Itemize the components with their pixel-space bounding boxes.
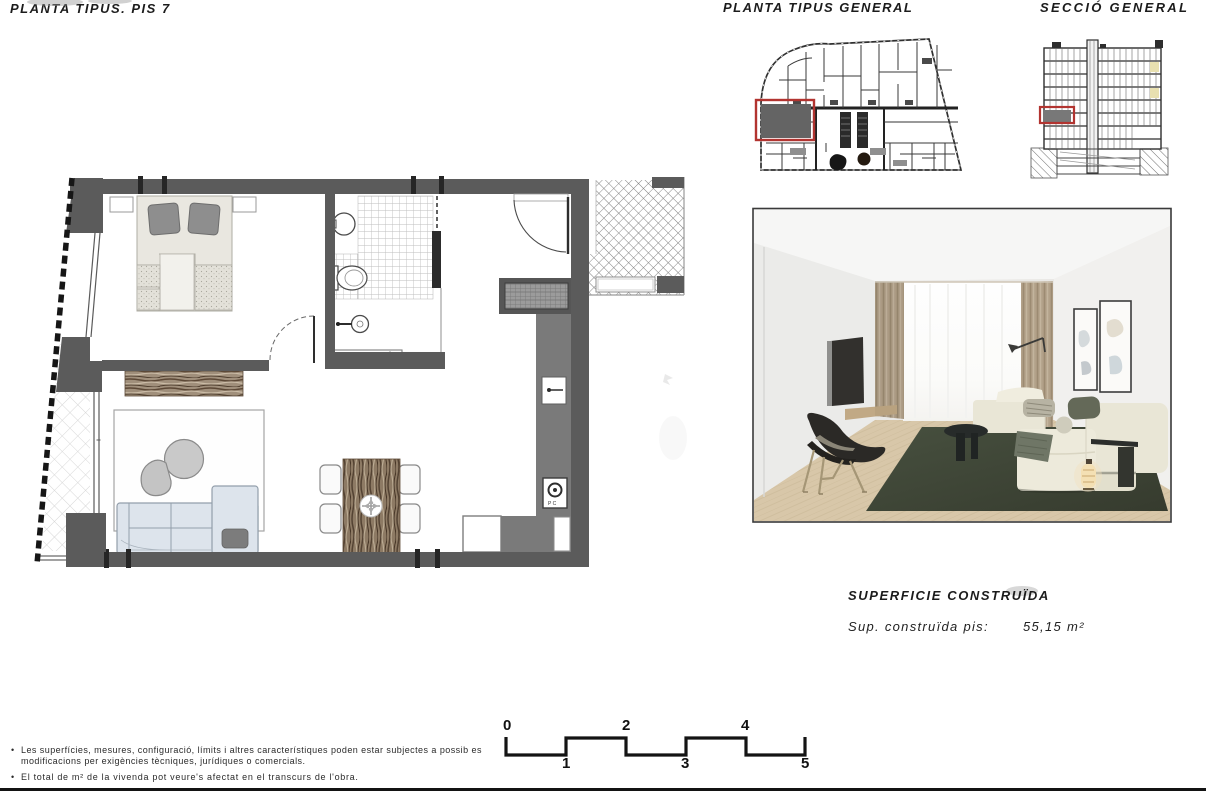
svg-text:P C: P C bbox=[548, 501, 557, 507]
